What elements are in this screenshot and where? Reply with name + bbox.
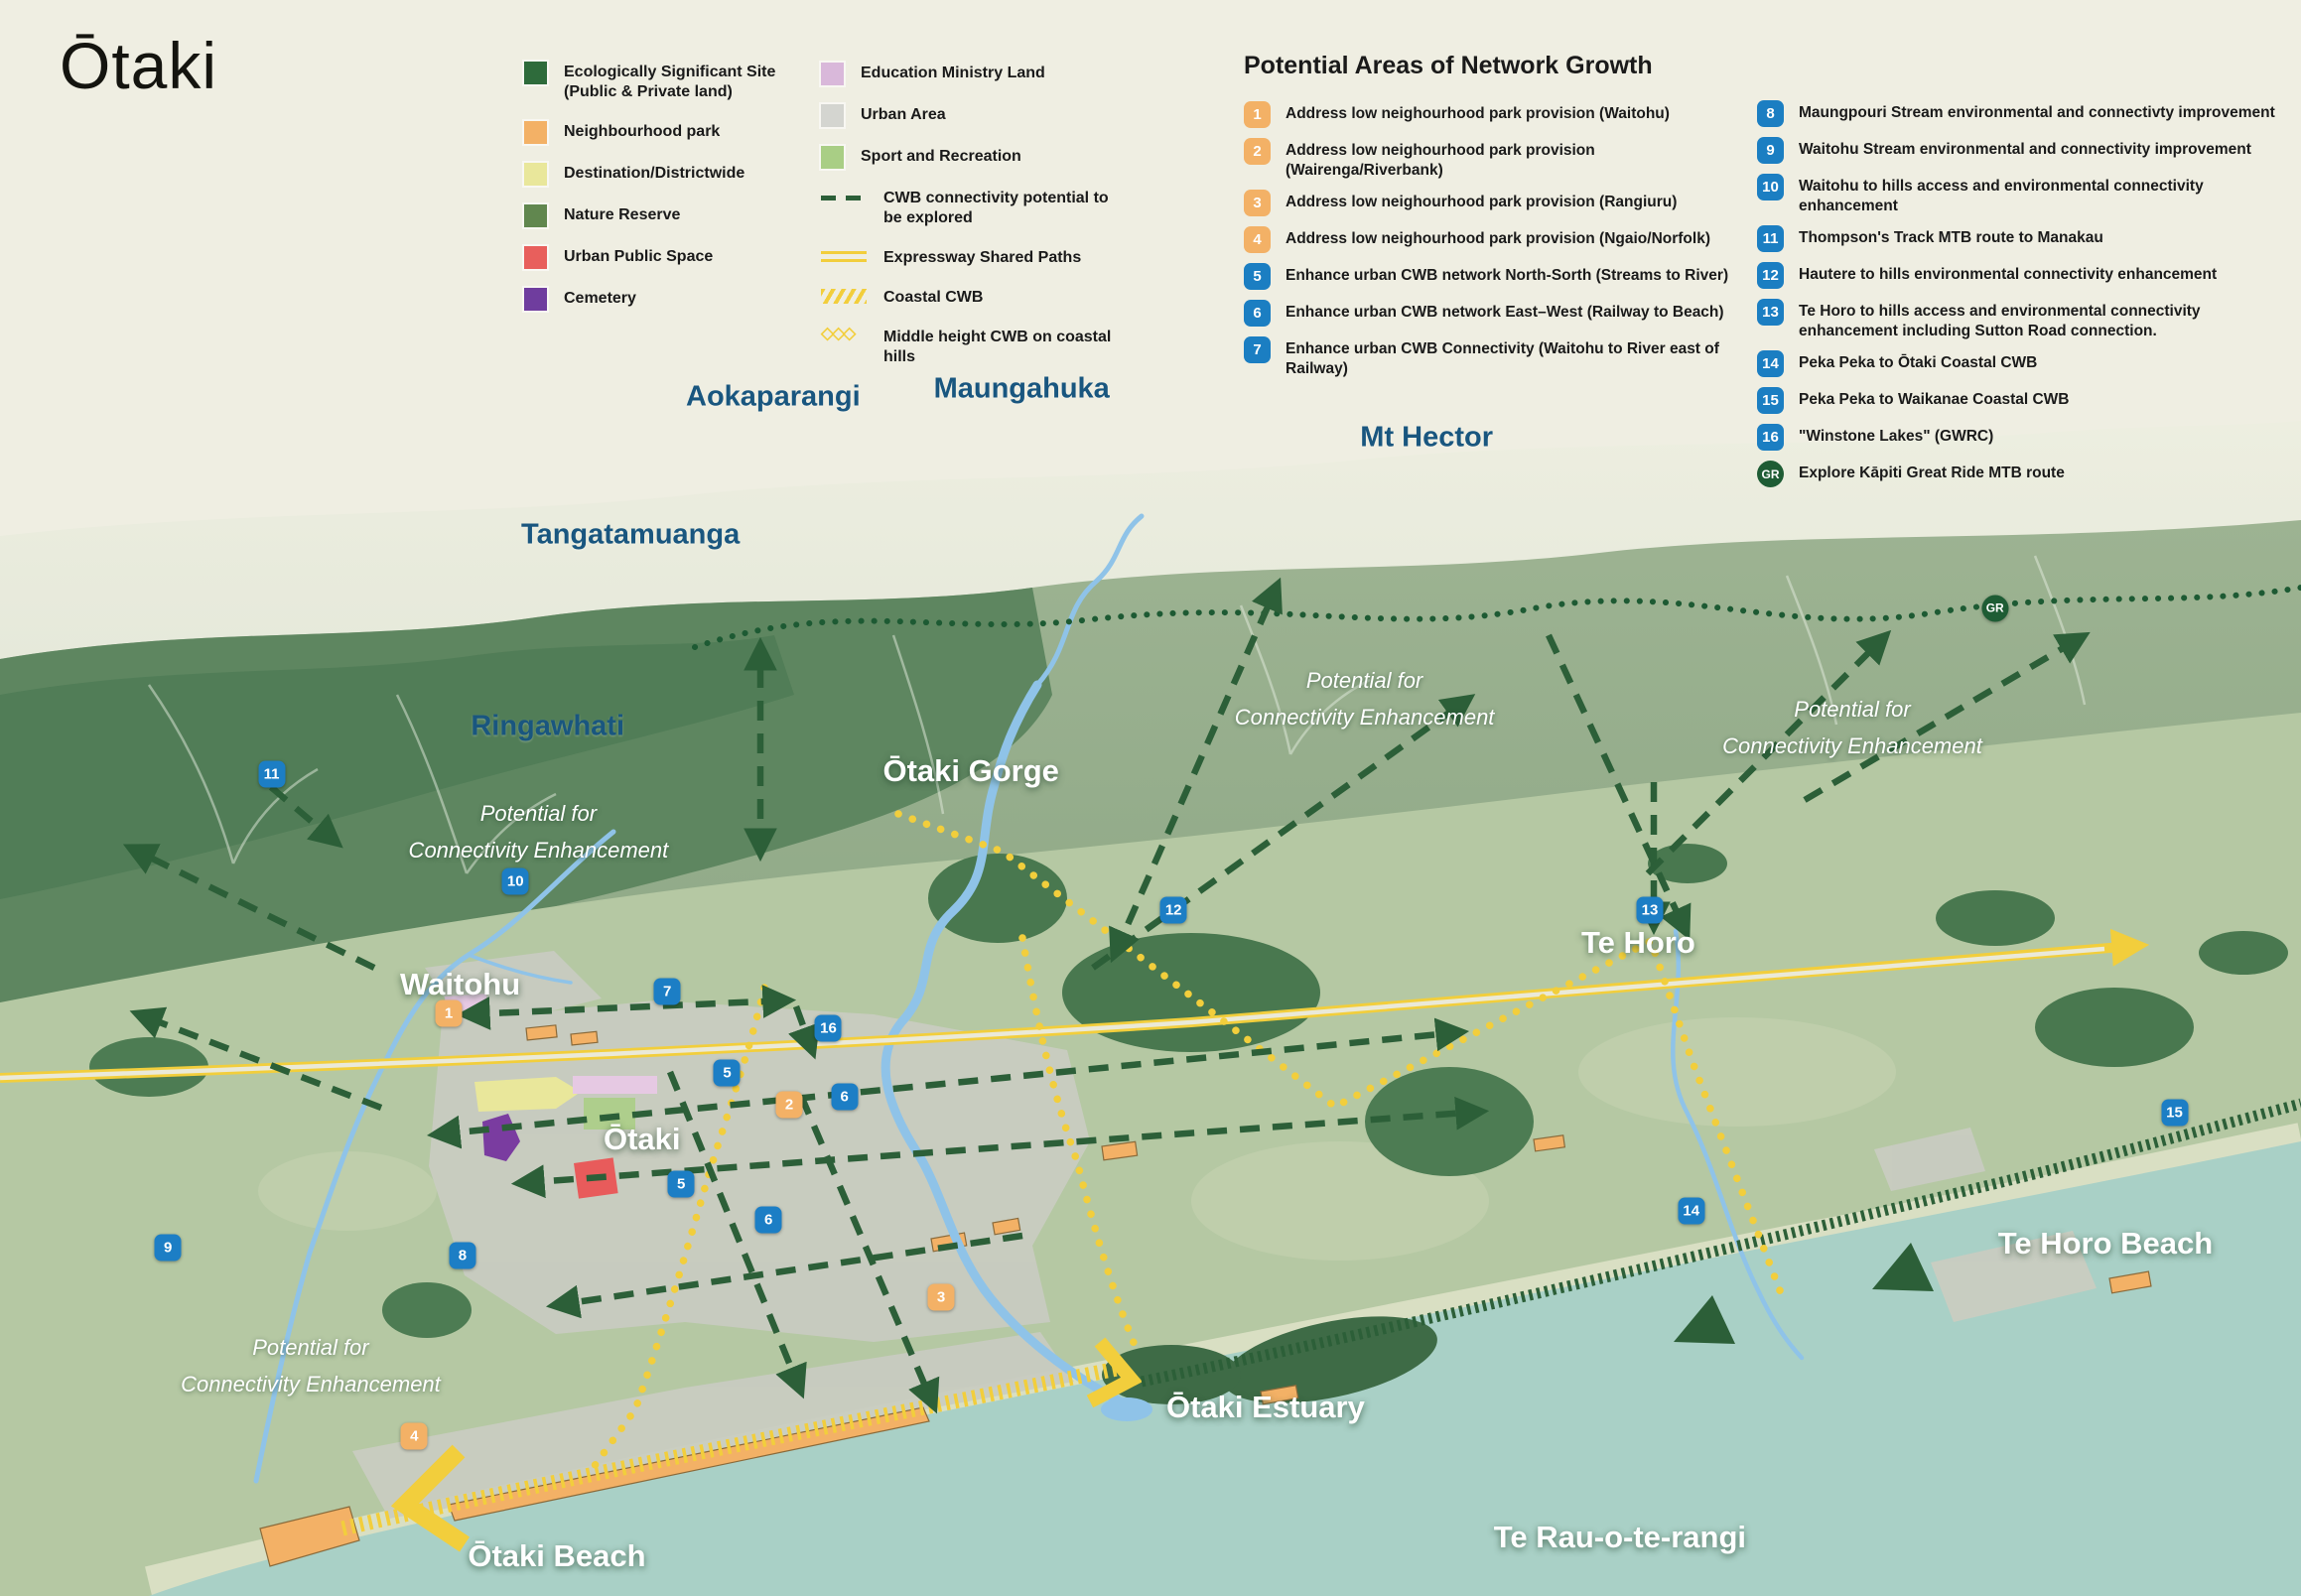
map-marker-number: 6 — [841, 1088, 849, 1105]
growth-item-7: 7 Enhance urban CWB Connectivity (Waitoh… — [1244, 336, 1732, 378]
map-marker-number: 7 — [663, 983, 671, 999]
growth-heading: Potential Areas of Network Growth — [1244, 52, 1653, 80]
growth-item-5: 5 Enhance urban CWB network North-Sorth … — [1244, 263, 1732, 290]
map-marker-GR: GR — [1981, 595, 2008, 621]
growth-item-number: 5 — [1244, 263, 1271, 290]
place-label-mt-hector: Mt Hector — [1360, 421, 1493, 454]
growth-item-10: 10 Waitohu to hills access and environme… — [1757, 174, 2301, 215]
place-label-waitohu: Waitohu — [400, 967, 520, 1002]
legend-item: Cemetery — [524, 288, 822, 311]
place-label-te-rau-o-te-rangi: Te Rau-o-te-rangi — [1494, 1520, 1746, 1555]
growth-item-11: 11 Thompson's Track MTB route to Manakau — [1757, 225, 2301, 252]
growth-list-column-1: 1 Address low neighourhood park provisio… — [1244, 101, 1732, 388]
growth-item-13: 13 Te Horo to hills access and environme… — [1757, 299, 2301, 340]
legend-swatch — [524, 204, 547, 227]
growth-item-text: Address low neighourhood park provision … — [1286, 101, 1670, 124]
place-label--taki-estuary: Ōtaki Estuary — [1166, 1390, 1365, 1425]
legend-swatch — [821, 196, 867, 200]
map-marker-number: 10 — [507, 872, 524, 889]
growth-item-number: 6 — [1244, 300, 1271, 327]
map-marker-5: 5 — [714, 1059, 741, 1086]
map-marker-7: 7 — [654, 978, 681, 1004]
growth-item-number: 14 — [1757, 350, 1784, 377]
map-marker-number: 6 — [764, 1211, 772, 1228]
connectivity-annotation: Potential for Connectivity Enhancement — [1235, 662, 1495, 735]
map-marker-6: 6 — [755, 1206, 782, 1233]
growth-item-number: 10 — [1757, 174, 1784, 200]
page-title: Ōtaki — [60, 28, 217, 103]
otaki-network-growth-map: AokaparangiMaungahukaMt HectorTangatamua… — [0, 0, 2301, 1596]
annotation-line1: Potential for — [1235, 662, 1495, 699]
legend-label: CWB connectivity potential to be explore… — [883, 188, 1119, 228]
legend-label: Ecologically Significant Site (Public & … — [564, 62, 800, 102]
growth-item-12: 12 Hautere to hills environmental connec… — [1757, 262, 2301, 289]
map-marker-number: 2 — [785, 1096, 793, 1113]
growth-item-text: Enhance urban CWB Connectivity (Waitohu … — [1286, 336, 1732, 378]
legend-label: Middle height CWB on coastal hills — [883, 327, 1119, 367]
legend-label: Coastal CWB — [883, 287, 983, 308]
growth-item-number: GR — [1757, 461, 1784, 487]
growth-item-number: 15 — [1757, 387, 1784, 414]
legend-label: Education Ministry Land — [861, 63, 1045, 83]
annotation-line2: Connectivity Enhancement — [1235, 699, 1495, 735]
connectivity-annotation: Potential for Connectivity Enhancement — [409, 795, 669, 868]
legend-swatch — [821, 146, 844, 169]
legend-item: Ecologically Significant Site (Public & … — [524, 62, 822, 102]
legend-swatch — [524, 288, 547, 311]
growth-item-8: 8 Maungpouri Stream environmental and co… — [1757, 100, 2301, 127]
legend-swatch — [524, 163, 547, 186]
legend-item: Urban Public Space — [524, 246, 822, 269]
map-marker-number: GR — [1986, 601, 2004, 615]
connectivity-annotation: Potential for Connectivity Enhancement — [1722, 691, 1982, 764]
place-label--taki: Ōtaki — [604, 1122, 681, 1157]
legend-label: Sport and Recreation — [861, 146, 1021, 167]
growth-item-number: 12 — [1757, 262, 1784, 289]
growth-item-number: 13 — [1757, 299, 1784, 326]
legend-label: Expressway Shared Paths — [883, 247, 1081, 268]
map-marker-8: 8 — [449, 1243, 475, 1269]
annotation-line2: Connectivity Enhancement — [409, 832, 669, 868]
map-marker-number: 9 — [164, 1240, 172, 1257]
legend-label: Neighbourhood park — [564, 121, 720, 142]
growth-item-14: 14 Peka Peka to Ōtaki Coastal CWB — [1757, 350, 2301, 377]
legend-item: Neighbourhood park — [524, 121, 822, 144]
place-label-maungahuka: Maungahuka — [934, 373, 1110, 406]
growth-item-9: 9 Waitohu Stream environmental and conne… — [1757, 137, 2301, 164]
map-marker-14: 14 — [1678, 1198, 1704, 1225]
legend-label: Destination/Districtwide — [564, 163, 744, 184]
legend-item: Urban Area — [821, 104, 1119, 127]
growth-item-text: Enhance urban CWB network North-Sorth (S… — [1286, 263, 1728, 286]
legend-item: Coastal CWB — [821, 287, 1119, 308]
growth-item-1: 1 Address low neighourhood park provisio… — [1244, 101, 1732, 128]
place-label--taki-gorge: Ōtaki Gorge — [882, 753, 1058, 789]
legend-column-1: Ecologically Significant Site (Public & … — [524, 62, 822, 330]
growth-item-text: Waitohu to hills access and environmenta… — [1799, 174, 2301, 215]
map-marker-number: 11 — [264, 765, 280, 782]
map-marker-number: 3 — [937, 1289, 945, 1306]
map-marker-16: 16 — [815, 1014, 842, 1041]
legend-swatch — [524, 62, 547, 84]
annotation-line1: Potential for — [1722, 691, 1982, 728]
map-marker-15: 15 — [2161, 1099, 2188, 1126]
growth-item-text: Maungpouri Stream environmental and conn… — [1799, 100, 2275, 123]
map-marker-number: 16 — [820, 1019, 837, 1036]
growth-item-text: Hautere to hills environmental connectiv… — [1799, 262, 2217, 285]
legend-label: Urban Public Space — [564, 246, 713, 267]
map-marker-5: 5 — [668, 1171, 695, 1198]
growth-item-2: 2 Address low neighourhood park provisio… — [1244, 138, 1732, 180]
growth-item-6: 6 Enhance urban CWB network East–West (R… — [1244, 300, 1732, 327]
growth-item-text: Peka Peka to Ōtaki Coastal CWB — [1799, 350, 2037, 373]
map-marker-number: 8 — [459, 1248, 467, 1264]
legend-item: Sport and Recreation — [821, 146, 1119, 169]
legend-label: Nature Reserve — [564, 204, 680, 225]
map-marker-9: 9 — [155, 1235, 182, 1262]
growth-item-text: Address low neighourhood park provision … — [1286, 138, 1732, 180]
growth-item-text: Thompson's Track MTB route to Manakau — [1799, 225, 2103, 248]
map-marker-number: 4 — [410, 1428, 418, 1445]
growth-item-text: Te Horo to hills access and environmenta… — [1799, 299, 2301, 340]
growth-item-16: 16 "Winstone Lakes" (GWRC) — [1757, 424, 2301, 451]
map-marker-number: 15 — [2166, 1104, 2183, 1121]
legend-item: CWB connectivity potential to be explore… — [821, 188, 1119, 228]
map-marker-11: 11 — [258, 760, 285, 787]
map-marker-number: 13 — [1642, 901, 1659, 918]
place-label-tangatamuanga: Tangatamuanga — [521, 518, 740, 551]
map-marker-2: 2 — [776, 1091, 803, 1118]
legend-swatch — [821, 289, 867, 304]
map-marker-10: 10 — [502, 867, 529, 894]
growth-item-number: 9 — [1757, 137, 1784, 164]
map-marker-3: 3 — [928, 1284, 955, 1311]
growth-item-number: 7 — [1244, 336, 1271, 363]
growth-item-number: 16 — [1757, 424, 1784, 451]
map-marker-number: 14 — [1683, 1203, 1699, 1220]
place-label-te-horo: Te Horo — [1581, 925, 1695, 961]
growth-item-number: 8 — [1757, 100, 1784, 127]
map-marker-1: 1 — [436, 1000, 463, 1027]
growth-item-text: Enhance urban CWB network East–West (Rai… — [1286, 300, 1724, 323]
place-label--taki-beach: Ōtaki Beach — [468, 1538, 645, 1574]
annotation-line2: Connectivity Enhancement — [181, 1366, 441, 1402]
growth-item-number: 4 — [1244, 226, 1271, 253]
growth-item-text: Peka Peka to Waikanae Coastal CWB — [1799, 387, 2070, 410]
map-marker-number: 12 — [1165, 901, 1182, 918]
legend-label: Urban Area — [861, 104, 946, 125]
growth-item-text: Waitohu Stream environmental and connect… — [1799, 137, 2251, 160]
place-label-aokaparangi: Aokaparangi — [686, 381, 861, 414]
growth-item-text: Address low neighourhood park provision … — [1286, 226, 1710, 249]
map-marker-number: 5 — [677, 1176, 685, 1193]
growth-item-text: "Winstone Lakes" (GWRC) — [1799, 424, 1993, 447]
legend-item: Education Ministry Land — [821, 63, 1119, 85]
place-label-te-horo-beach: Te Horo Beach — [1998, 1226, 2213, 1262]
map-marker-12: 12 — [1160, 896, 1187, 923]
growth-item-number: 11 — [1757, 225, 1784, 252]
legend-item: Destination/Districtwide — [524, 163, 822, 186]
growth-list-column-2: 8 Maungpouri Stream environmental and co… — [1757, 100, 2301, 497]
growth-item-3: 3 Address low neighourhood park provisio… — [1244, 190, 1732, 216]
map-marker-6: 6 — [831, 1083, 858, 1110]
growth-item-text: Address low neighourhood park provision … — [1286, 190, 1677, 212]
legend-swatch — [821, 63, 844, 85]
annotation-line1: Potential for — [409, 795, 669, 832]
legend-column-2: Education Ministry Land Urban Area Sport… — [821, 63, 1119, 386]
legend-swatch — [524, 121, 547, 144]
legend-item: Expressway Shared Paths — [821, 247, 1119, 268]
growth-item-4: 4 Address low neighourhood park provisio… — [1244, 226, 1732, 253]
map-marker-number: 1 — [445, 1005, 453, 1022]
map-marker-13: 13 — [1637, 896, 1664, 923]
connectivity-annotation: Potential for Connectivity Enhancement — [181, 1329, 441, 1402]
legend-label: Cemetery — [564, 288, 636, 309]
legend-swatch — [821, 251, 867, 262]
legend-swatch — [821, 324, 867, 341]
growth-item-GR: GR Explore Kāpiti Great Ride MTB route — [1757, 461, 2301, 487]
legend-swatch — [821, 104, 844, 127]
growth-item-text: Explore Kāpiti Great Ride MTB route — [1799, 461, 2065, 483]
legend-item: Middle height CWB on coastal hills — [821, 327, 1119, 367]
annotation-line1: Potential for — [181, 1329, 441, 1366]
place-label-ringawhati: Ringawhati — [471, 710, 624, 742]
growth-item-number: 1 — [1244, 101, 1271, 128]
growth-item-15: 15 Peka Peka to Waikanae Coastal CWB — [1757, 387, 2301, 414]
map-marker-4: 4 — [401, 1423, 428, 1450]
annotation-line2: Connectivity Enhancement — [1722, 728, 1982, 764]
legend-item: Nature Reserve — [524, 204, 822, 227]
growth-item-number: 3 — [1244, 190, 1271, 216]
map-marker-number: 5 — [723, 1064, 731, 1081]
legend-swatch — [524, 246, 547, 269]
growth-item-number: 2 — [1244, 138, 1271, 165]
